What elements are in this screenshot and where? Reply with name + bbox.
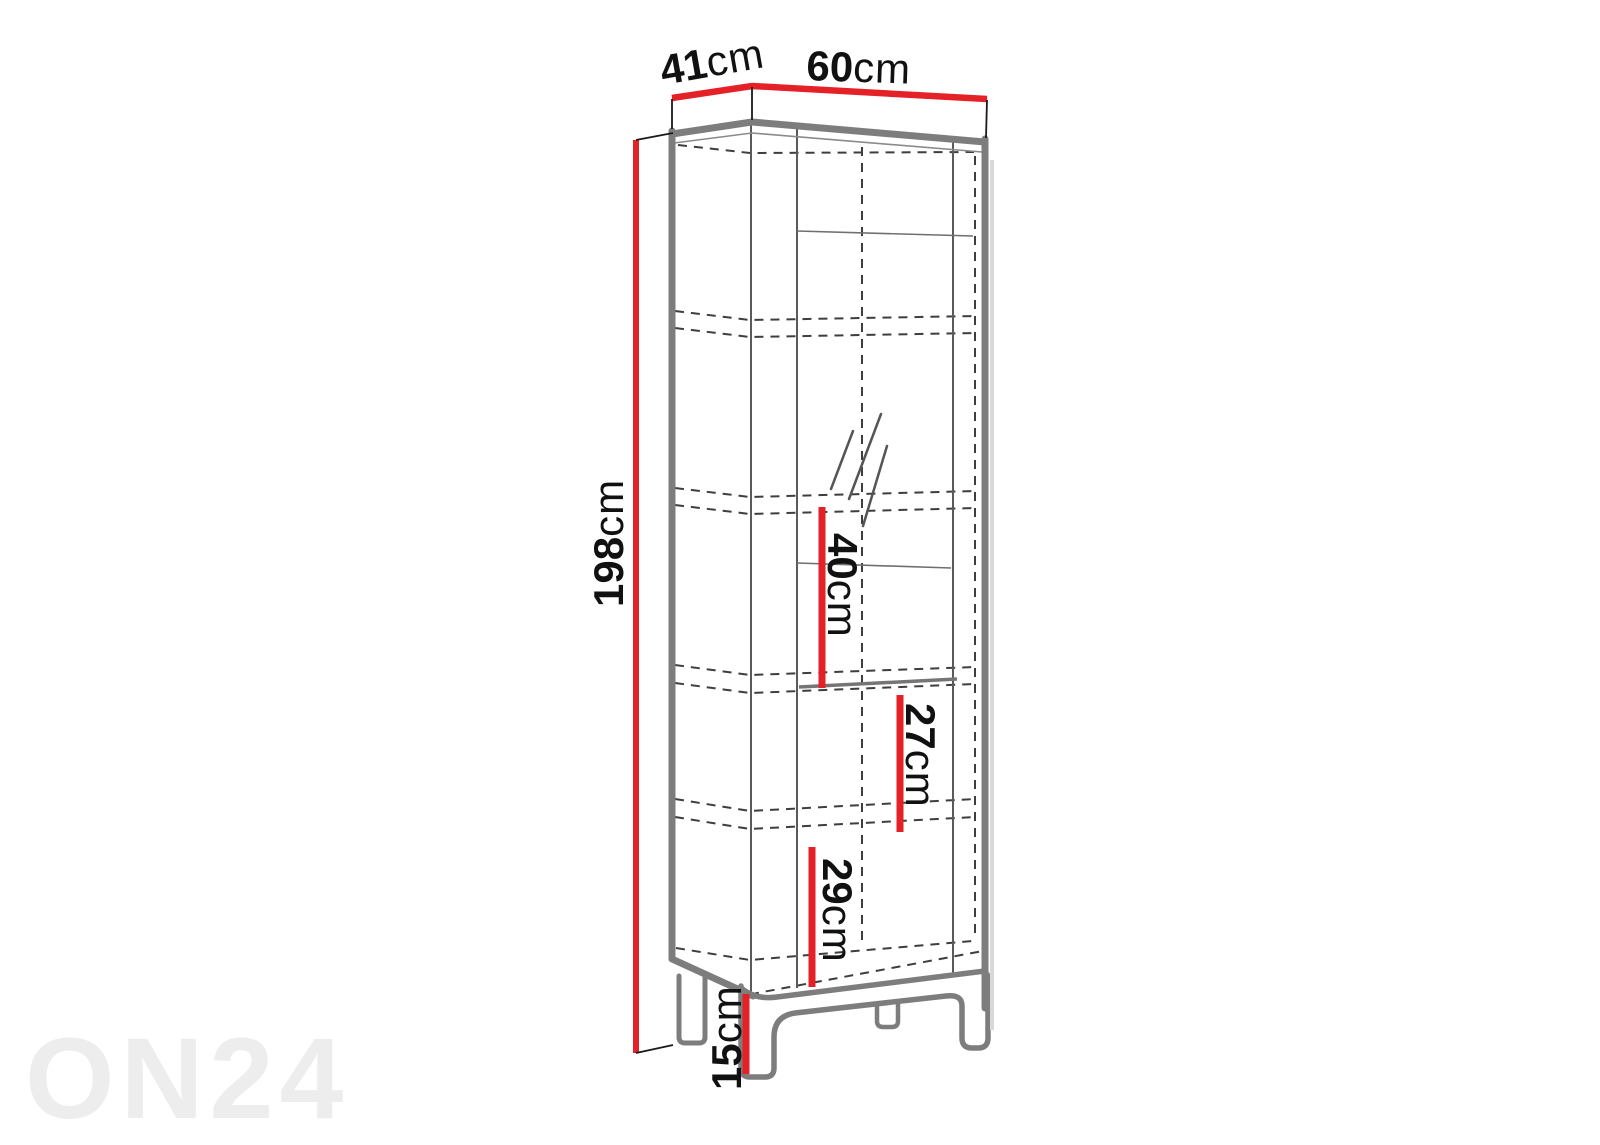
shelf-1-bottom (675, 328, 975, 337)
furniture-dimension-diagram: ON24 (0, 0, 1600, 1145)
label-leg-height: 15cm (703, 985, 750, 1090)
glass-reflection-icon (831, 414, 887, 526)
watermark-text: ON24 (25, 1015, 349, 1143)
shelf-4-bottom (675, 817, 975, 829)
glass-shelf-upper-edge (797, 231, 973, 236)
left-edge (672, 131, 753, 996)
label-upper-gap: 40cm (819, 533, 866, 638)
label-height: 198cm (585, 479, 632, 607)
shelf-1-top (675, 311, 975, 320)
rear-left-leg (679, 974, 705, 1043)
label-width: 60cm (806, 42, 912, 93)
label-middle-gap: 27cm (897, 703, 944, 808)
front-leg-frame (741, 971, 988, 1077)
label-lower-gap: 29cm (814, 858, 861, 963)
cabinet-diagram-svg: ON24 (0, 0, 1600, 1145)
shelf-2-top (675, 488, 975, 497)
watermark: ON24 (25, 1015, 349, 1143)
top-interior-edge (678, 145, 974, 153)
